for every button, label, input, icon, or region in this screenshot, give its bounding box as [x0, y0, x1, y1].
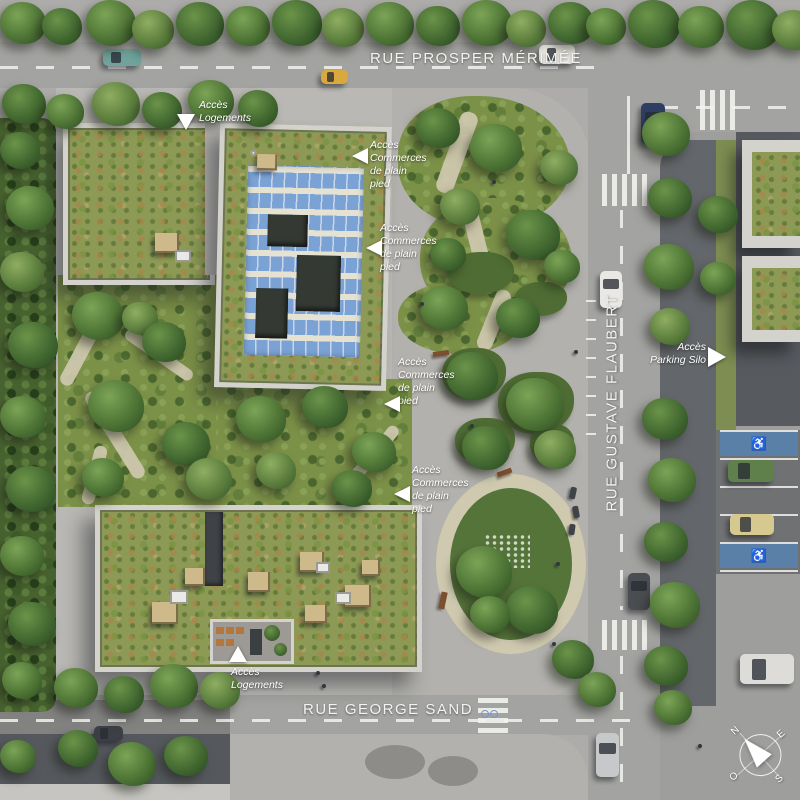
car-windshield [740, 517, 751, 532]
pedestrian [492, 180, 496, 184]
roof-terrace [210, 619, 294, 664]
disabled-parking-icon: ♿ [751, 436, 767, 452]
parking-tick-line [586, 338, 596, 340]
street-label-prosper-merimee: RUE PROSPER MÉRIMÉE [370, 51, 582, 66]
label-line: Commerces [412, 477, 469, 490]
tree-canopy [352, 432, 396, 472]
tree-canopy [462, 0, 512, 46]
tree-canopy [462, 426, 510, 470]
parking-tick-line [586, 357, 596, 359]
label-line: Logements [231, 679, 283, 692]
label-line: Parking Silo [626, 354, 706, 367]
terrace-table [236, 627, 244, 634]
pedestrian [322, 684, 326, 688]
label-line: Accès [412, 464, 469, 477]
car-windshield [738, 463, 750, 478]
silo-green-roof [752, 152, 800, 236]
tree-canopy [164, 736, 208, 776]
tree-canopy [302, 386, 348, 428]
tree-canopy [8, 322, 58, 368]
arrow-acces-logements-south [229, 646, 247, 662]
roof-courtyard [255, 288, 288, 339]
pedestrian [316, 671, 320, 675]
crosswalk-flaubert-south [602, 620, 652, 650]
label-acces-commerces-4: Accès Commerces de plain pied [412, 464, 469, 517]
tree-shadow [428, 756, 478, 786]
car [94, 726, 123, 741]
label-line: de plain [398, 382, 455, 395]
crosswalk-merimee-east [700, 90, 740, 130]
center-line-flaubert-south [620, 656, 623, 800]
tree-canopy [496, 298, 540, 338]
roof-skylight [170, 590, 188, 604]
tree-canopy [332, 470, 372, 507]
tree-canopy [0, 740, 36, 773]
car [628, 573, 650, 610]
arrow-acces-commerces-4 [394, 486, 410, 502]
car [740, 654, 794, 684]
parking-bay-line [720, 570, 798, 572]
tree-canopy [142, 322, 186, 362]
tree-canopy [470, 124, 522, 172]
roof-vent-box [257, 154, 277, 170]
label-line: Accès [380, 222, 437, 235]
bicycle-road-marking [481, 707, 497, 717]
tree-canopy [650, 308, 690, 345]
tree-canopy [6, 466, 56, 512]
parking-tick-line [586, 395, 596, 397]
tree-canopy [86, 0, 136, 46]
roof-skylight [316, 562, 330, 573]
tree-canopy [236, 396, 286, 442]
label-line: pied [380, 261, 437, 274]
tree-canopy [0, 536, 44, 576]
label-line: Accès [231, 666, 283, 679]
car [728, 460, 774, 482]
terrace-counter [250, 629, 262, 655]
tree-canopy [544, 250, 580, 283]
crosswalk-flaubert-north [602, 174, 652, 206]
parking-bay-line [720, 542, 798, 544]
disabled-parking-spot: ♿ [720, 432, 798, 456]
tree-canopy [534, 430, 576, 469]
stop-line [627, 96, 630, 174]
car-windshield [752, 659, 766, 680]
tree-canopy [322, 8, 364, 47]
tree-canopy [72, 292, 124, 340]
tree-canopy [678, 6, 724, 48]
street-label-gustave-flaubert: RUE GUSTAVE FLAUBERT [605, 342, 620, 512]
roof-skylight [335, 592, 351, 604]
tree-canopy [648, 458, 696, 502]
tree-canopy [628, 0, 680, 48]
terrace-table [226, 639, 234, 646]
roof-core-gap [205, 512, 223, 586]
label-acces-commerces-1: Accès Commerces de plain pied [370, 139, 427, 192]
silo-building [742, 256, 800, 342]
pedestrian [574, 350, 578, 354]
disabled-parking-spot: ♿ [720, 544, 798, 568]
parking-tick-line [586, 300, 596, 302]
label-line: pied [398, 395, 455, 408]
tree-canopy [654, 690, 692, 725]
label-line: pied [370, 178, 427, 191]
compass-rose: N E S O [724, 720, 794, 790]
arrow-acces-commerces-2 [366, 240, 382, 256]
label-line: Accès [199, 99, 251, 112]
roof-vent-box [362, 560, 380, 576]
roof-vent-box [152, 602, 178, 624]
tree-canopy [506, 10, 546, 47]
label-line: de plain [412, 490, 469, 503]
label-line: Accès [626, 341, 706, 354]
label-line: Accès [398, 356, 455, 369]
car-windshield [631, 581, 646, 591]
tree-canopy [108, 742, 156, 786]
building-northwest [63, 123, 215, 285]
tree-canopy [0, 132, 40, 169]
tree-canopy [366, 2, 414, 46]
tree-canopy [540, 150, 578, 185]
tree-canopy [272, 0, 322, 46]
compass-south-label: S [774, 773, 786, 785]
tree-canopy [82, 458, 124, 497]
tree-canopy [176, 2, 224, 46]
tree-canopy [46, 94, 84, 129]
parking-tick-line [586, 376, 596, 378]
car-windshield [111, 52, 121, 64]
building-edge [0, 784, 230, 800]
silo-building [742, 140, 800, 248]
tree-canopy [650, 582, 700, 628]
tree-canopy [586, 8, 626, 45]
car [596, 733, 619, 777]
terrace-plant [274, 643, 287, 656]
tree-canopy [8, 602, 56, 646]
tree-canopy [644, 244, 694, 290]
tree-canopy [642, 112, 690, 156]
site-plan: ♿ ♿ RUE PROSPER MÉRIMÉE RUE GEORGE SAND … [0, 0, 800, 800]
label-line: de plain [370, 165, 427, 178]
tree-canopy [2, 84, 46, 124]
parking-tick-line [586, 414, 596, 416]
car-windshield [603, 279, 618, 289]
tree-canopy [88, 380, 144, 432]
parking-bay-line [720, 486, 798, 488]
tree-canopy [470, 596, 510, 633]
tree-canopy [420, 286, 468, 330]
tree-canopy [58, 730, 98, 767]
terrace-table [216, 627, 224, 634]
terrace-plant [264, 625, 280, 641]
tree-canopy [506, 378, 564, 431]
tree-canopy [132, 10, 174, 49]
tree-canopy [42, 8, 82, 45]
tree-canopy [506, 586, 558, 634]
tree-canopy [92, 82, 140, 126]
label-line: de plain [380, 248, 437, 261]
parking-tick-line [586, 319, 596, 321]
label-acces-commerces-3: Accès Commerces de plain pied [398, 356, 455, 409]
tree-canopy [648, 178, 692, 218]
roof-courtyard [296, 255, 341, 312]
label-acces-logements-north: Accès Logements [199, 99, 251, 125]
car [103, 49, 141, 66]
silo-green-roof [752, 268, 800, 330]
roof-vent-box [185, 568, 205, 586]
tree-canopy [54, 668, 98, 708]
roof-access-dot [250, 150, 256, 156]
label-acces-logements-south: Accès Logements [231, 666, 283, 692]
tree-canopy [142, 92, 182, 129]
tree-canopy [644, 646, 688, 686]
tree-canopy [0, 2, 46, 44]
arrow-acces-commerces-3 [384, 396, 400, 412]
tree-canopy [2, 662, 42, 699]
pedestrian [698, 744, 702, 748]
parking-tick-line [586, 433, 596, 435]
center-line-george-sand [0, 719, 640, 722]
arrow-acces-logements-north [177, 114, 195, 130]
terrace-table [216, 639, 224, 646]
tree-canopy [440, 188, 480, 225]
disabled-parking-icon: ♿ [751, 548, 767, 564]
roof-vent-box [305, 605, 327, 623]
tree-canopy [416, 6, 460, 46]
tree-canopy [6, 186, 54, 230]
building-south [95, 505, 422, 672]
terrace-table [226, 627, 234, 634]
tree-canopy [256, 452, 296, 489]
tree-canopy [456, 546, 512, 598]
arrow-acces-commerces-1 [352, 148, 368, 164]
car-windshield [327, 72, 334, 82]
tree-canopy [700, 262, 736, 295]
tree-canopy [644, 522, 688, 562]
label-line: Commerces [380, 235, 437, 248]
compass-rotated-group: N E S O [710, 706, 800, 800]
label-line: pied [412, 503, 469, 516]
car [321, 70, 348, 84]
roof-courtyard [267, 214, 308, 247]
car [730, 514, 774, 535]
parking-bay-line [720, 430, 798, 432]
tree-canopy [698, 196, 738, 233]
tree-canopy [0, 396, 46, 438]
label-line: Logements [199, 112, 251, 125]
car-windshield [100, 728, 108, 739]
label-line: Commerces [370, 152, 427, 165]
roof-vent-box [248, 572, 270, 592]
tree-canopy [104, 676, 144, 713]
pedestrian [470, 424, 474, 428]
tree-canopy [186, 458, 232, 500]
label-line: Accès [370, 139, 427, 152]
pedestrian [420, 302, 424, 306]
tree-canopy [150, 664, 198, 708]
label-acces-parking-silo: Accès Parking Silo [626, 341, 706, 367]
tree-canopy [642, 398, 688, 440]
street-label-george-sand: RUE GEORGE SAND [303, 702, 473, 717]
tree-canopy [578, 672, 616, 707]
tree-canopy [0, 252, 44, 292]
label-acces-commerces-2: Accès Commerces de plain pied [380, 222, 437, 275]
pedestrian [552, 642, 556, 646]
tree-canopy [226, 6, 270, 46]
arrow-acces-parking-silo [708, 347, 726, 367]
roof-skylight [175, 250, 191, 262]
pedestrian [556, 562, 560, 566]
car-windshield [599, 743, 615, 754]
label-line: Commerces [398, 369, 455, 382]
tree-shadow [365, 745, 425, 779]
